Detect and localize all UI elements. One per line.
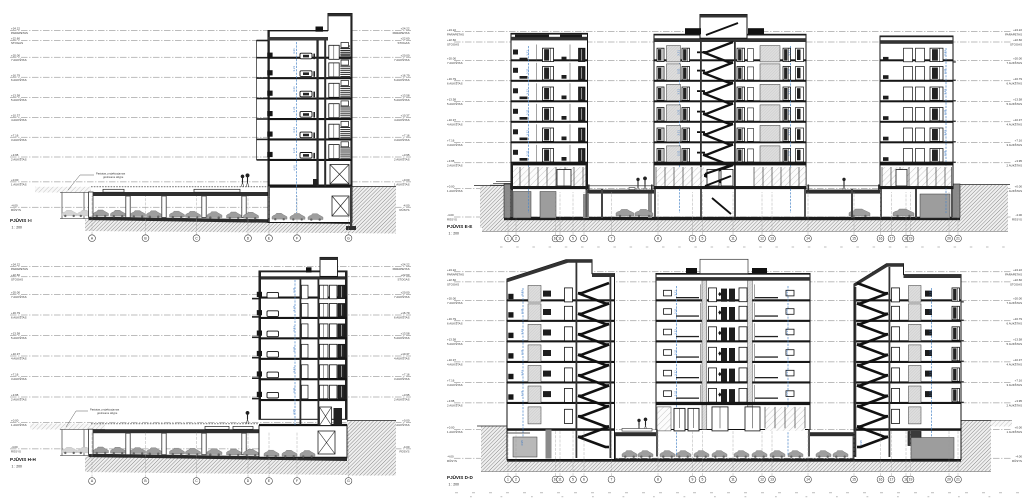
- svg-text:+0.00: +0.00: [1015, 185, 1023, 189]
- svg-text:STOGAS: STOGAS: [447, 283, 459, 287]
- svg-text:5 AUKŠTAS: 5 AUKŠTAS: [11, 335, 27, 340]
- svg-text:+7.16: +7.16: [11, 373, 19, 377]
- svg-text:+22.60: +22.60: [11, 37, 20, 41]
- svg-text:2 AUKŠTAS: 2 AUKŠTAS: [447, 162, 463, 167]
- svg-text:7 AUKŠTAS: 7 AUKŠTAS: [1006, 60, 1022, 65]
- svg-text:3.21: 3.21: [526, 89, 530, 95]
- svg-text:4 AUKŠTAS: 4 AUKŠTAS: [1006, 121, 1022, 126]
- svg-text:G: G: [347, 236, 350, 240]
- svg-text:3.21: 3.21: [292, 326, 296, 332]
- svg-text:1: 1: [507, 478, 509, 482]
- svg-text:+20.00: +20.00: [1013, 56, 1022, 60]
- svg-text:3.21: 3.21: [785, 290, 789, 296]
- svg-text:3.21: 3.21: [929, 370, 933, 376]
- svg-text:PJŪVIS D-D: PJŪVIS D-D: [447, 474, 473, 480]
- svg-text:+24.22: +24.22: [1013, 28, 1022, 32]
- svg-text:3.21: 3.21: [520, 370, 524, 376]
- svg-text:3.21: 3.21: [292, 48, 296, 54]
- svg-text:3.21: 3.21: [788, 150, 792, 156]
- svg-text:3.21: 3.21: [677, 68, 681, 74]
- svg-text:+0.00: +0.00: [447, 426, 455, 430]
- svg-text:+22.60: +22.60: [401, 273, 410, 277]
- svg-text:3.21: 3.21: [929, 308, 933, 314]
- svg-text:+10.37: +10.37: [401, 352, 410, 356]
- svg-text:+16.79: +16.79: [447, 77, 456, 81]
- svg-text:14: 14: [806, 237, 810, 241]
- svg-text:3.21: 3.21: [929, 290, 933, 296]
- svg-text:+13.58: +13.58: [1013, 97, 1022, 101]
- svg-text:20: 20: [947, 237, 951, 241]
- svg-text:+10.37: +10.37: [11, 114, 20, 118]
- svg-text:4 AUKŠTAS: 4 AUKŠTAS: [394, 356, 410, 361]
- svg-text:2 AUKŠTAS: 2 AUKŠTAS: [11, 157, 27, 162]
- svg-text:+0.00: +0.00: [11, 419, 19, 423]
- svg-text:+22.60: +22.60: [447, 38, 456, 42]
- svg-text:17: 17: [890, 237, 894, 241]
- svg-text:+3.95: +3.95: [1015, 159, 1023, 163]
- svg-text:+20.00: +20.00: [447, 56, 456, 60]
- svg-text:5 AUKŠTAS: 5 AUKŠTAS: [394, 97, 410, 102]
- svg-text:2 AUKŠTAS: 2 AUKŠTAS: [447, 403, 463, 408]
- svg-text:3.21: 3.21: [674, 308, 678, 314]
- svg-text:3.21: 3.21: [526, 50, 530, 56]
- svg-text:3.21: 3.21: [520, 349, 524, 355]
- svg-text:+13.58: +13.58: [11, 94, 20, 98]
- svg-text:+10.37: +10.37: [447, 358, 456, 362]
- svg-text:8: 8: [657, 478, 659, 482]
- svg-text:21: 21: [956, 478, 960, 482]
- svg-text:3.21: 3.21: [292, 387, 296, 393]
- svg-text:3.21: 3.21: [292, 367, 296, 373]
- svg-text:+0.00: +0.00: [1015, 426, 1023, 430]
- svg-text:+16.79: +16.79: [401, 311, 410, 315]
- svg-text:STOGAS: STOGAS: [398, 41, 410, 45]
- svg-text:3.21: 3.21: [929, 390, 933, 396]
- svg-text:3.21: 3.21: [929, 329, 933, 335]
- svg-text:+16.79: +16.79: [11, 73, 20, 77]
- svg-text:20: 20: [947, 478, 951, 482]
- svg-text:+7.16: +7.16: [402, 133, 410, 137]
- svg-text:+20.00: +20.00: [401, 291, 410, 295]
- svg-text:3.21: 3.21: [292, 346, 296, 352]
- svg-text:3.21: 3.21: [292, 106, 296, 112]
- svg-text:7 AUKŠTAS: 7 AUKŠTAS: [447, 60, 463, 65]
- svg-text:14: 14: [806, 478, 810, 482]
- svg-text:RŪSYS: RŪSYS: [400, 208, 410, 212]
- svg-text:+7.16: +7.16: [447, 138, 455, 142]
- svg-text:3.21: 3.21: [788, 130, 792, 136]
- svg-text:1 : 200: 1 : 200: [449, 231, 459, 235]
- svg-text:STOGAS: STOGAS: [447, 43, 459, 47]
- svg-text:+24.22: +24.22: [447, 28, 456, 32]
- svg-text:3 AUKŠTAS: 3 AUKŠTAS: [447, 382, 463, 387]
- svg-text:3.21: 3.21: [785, 308, 789, 314]
- svg-text:5 AUKŠTAS: 5 AUKŠTAS: [394, 335, 410, 340]
- svg-text:3.21: 3.21: [677, 89, 681, 95]
- svg-text:1 AUKŠTAS: 1 AUKŠTAS: [447, 188, 463, 193]
- svg-text:+22.60: +22.60: [447, 278, 456, 282]
- svg-text:3.21: 3.21: [677, 150, 681, 156]
- svg-text:6 AUKŠTAS: 6 AUKŠTAS: [11, 77, 27, 82]
- svg-text:+10.37: +10.37: [11, 352, 20, 356]
- svg-text:PJŪVIS H-H: PJŪVIS H-H: [10, 456, 36, 462]
- svg-text:6 AUKŠTAS: 6 AUKŠTAS: [394, 77, 410, 82]
- svg-text:13: 13: [770, 478, 774, 482]
- svg-text:3.21: 3.21: [788, 68, 792, 74]
- svg-text:15: 15: [852, 237, 856, 241]
- svg-text:5 AUKŠTAS: 5 AUKŠTAS: [1006, 101, 1022, 106]
- svg-text:PARAPETAS: PARAPETAS: [11, 31, 28, 35]
- svg-text:7 AUKŠTAS: 7 AUKŠTAS: [11, 57, 27, 62]
- svg-text:+13.58: +13.58: [447, 337, 456, 341]
- svg-text:7: 7: [611, 237, 613, 241]
- svg-text:RŪSYS: RŪSYS: [1012, 459, 1022, 463]
- svg-text:1 AUKŠTAS: 1 AUKŠTAS: [1006, 429, 1022, 434]
- svg-text:3.21: 3.21: [929, 349, 933, 355]
- svg-text:6 AUKŠTAS: 6 AUKŠTAS: [11, 315, 27, 320]
- svg-text:3.21: 3.21: [943, 109, 947, 115]
- svg-text:3.21: 3.21: [292, 66, 296, 72]
- svg-text:RŪSYS: RŪSYS: [1012, 218, 1022, 222]
- svg-text:3.21: 3.21: [677, 109, 681, 115]
- svg-text:+3.95: +3.95: [402, 393, 410, 397]
- svg-text:+10.37: +10.37: [401, 114, 410, 118]
- svg-text:5: 5: [702, 478, 704, 482]
- svg-text:2 AUKŠTAS: 2 AUKŠTAS: [11, 397, 27, 402]
- svg-text:3.21: 3.21: [785, 329, 789, 335]
- svg-text:PARAPETAS: PARAPETAS: [447, 32, 464, 36]
- svg-text:-4.00: -4.00: [447, 213, 454, 217]
- svg-text:17: 17: [890, 478, 894, 482]
- svg-text:+13.58: +13.58: [401, 94, 410, 98]
- svg-text:5: 5: [702, 237, 704, 241]
- svg-text:3.21: 3.21: [520, 308, 524, 314]
- svg-text:3.21: 3.21: [526, 109, 530, 115]
- svg-text:8: 8: [657, 237, 659, 241]
- svg-text:RŪSYS: RŪSYS: [447, 218, 457, 222]
- svg-text:STOGAS: STOGAS: [398, 277, 410, 281]
- svg-text:21: 21: [956, 237, 960, 241]
- svg-text:3.21: 3.21: [520, 329, 524, 335]
- svg-text:3.21: 3.21: [674, 390, 678, 396]
- svg-text:5 AUKŠTAS: 5 AUKŠTAS: [447, 101, 463, 106]
- svg-text:12: 12: [760, 478, 764, 482]
- svg-text:4 AUKŠTAS: 4 AUKŠTAS: [1006, 362, 1022, 367]
- svg-text:9: 9: [692, 237, 694, 241]
- svg-text:RŪSYS: RŪSYS: [400, 450, 410, 454]
- svg-text:4 AUKŠTAS: 4 AUKŠTAS: [447, 121, 463, 126]
- svg-text:19: 19: [909, 478, 913, 482]
- svg-text:1 AUKŠTAS: 1 AUKŠTAS: [394, 182, 410, 187]
- svg-text:+7.16: +7.16: [1015, 138, 1023, 142]
- svg-text:4 AUKŠTAS: 4 AUKŠTAS: [394, 117, 410, 122]
- svg-text:+0.00: +0.00: [402, 419, 410, 423]
- svg-text:3 AUKŠTAS: 3 AUKŠTAS: [447, 142, 463, 147]
- svg-text:+13.58: +13.58: [447, 97, 456, 101]
- svg-text:PJŪVIS E-E: PJŪVIS E-E: [447, 223, 472, 229]
- svg-text:19: 19: [909, 237, 913, 241]
- svg-text:STOGAS: STOGAS: [11, 277, 23, 281]
- svg-text:3.21: 3.21: [785, 370, 789, 376]
- svg-text:4.95: 4.95: [293, 165, 297, 171]
- svg-text:+7.16: +7.16: [447, 379, 455, 383]
- svg-text:6 AUKŠTAS: 6 AUKŠTAS: [1006, 320, 1022, 325]
- svg-text:3.21: 3.21: [520, 290, 524, 296]
- svg-text:15: 15: [852, 478, 856, 482]
- svg-text:3 AUKŠTAS: 3 AUKŠTAS: [394, 376, 410, 381]
- svg-text:11: 11: [558, 478, 562, 482]
- svg-text:7: 7: [611, 478, 613, 482]
- svg-text:4 AUKŠTAS: 4 AUKŠTAS: [11, 356, 27, 361]
- svg-text:+3.95: +3.95: [447, 159, 455, 163]
- svg-text:2 AUKŠTAS: 2 AUKŠTAS: [1006, 162, 1022, 167]
- svg-text:+3.95: +3.95: [402, 153, 410, 157]
- svg-text:3 AUKŠTAS: 3 AUKŠTAS: [11, 376, 27, 381]
- svg-text:5 AUKŠTAS: 5 AUKŠTAS: [1006, 341, 1022, 346]
- svg-text:3.21: 3.21: [788, 89, 792, 95]
- svg-text:3.21: 3.21: [943, 89, 947, 95]
- svg-text:1 AUKŠTAS: 1 AUKŠTAS: [11, 422, 27, 427]
- svg-text:1 AUKŠTAS: 1 AUKŠTAS: [1006, 188, 1022, 193]
- svg-text:1 : 200: 1 : 200: [12, 225, 22, 229]
- svg-text:3.21: 3.21: [292, 147, 296, 153]
- svg-text:+16.79: +16.79: [401, 73, 410, 77]
- svg-text:3 AUKŠTAS: 3 AUKŠTAS: [1006, 142, 1022, 147]
- svg-text:PARAPETAS: PARAPETAS: [1005, 272, 1022, 276]
- svg-text:+0.00: +0.00: [447, 185, 455, 189]
- svg-text:3.21: 3.21: [292, 287, 296, 293]
- svg-text:2: 2: [515, 478, 517, 482]
- svg-text:+13.58: +13.58: [401, 332, 410, 336]
- svg-text:3 AUKŠTAS: 3 AUKŠTAS: [11, 137, 27, 142]
- svg-text:4.95: 4.95: [859, 440, 863, 446]
- svg-text:12: 12: [760, 237, 764, 241]
- svg-text:-4.00: -4.00: [1015, 213, 1022, 217]
- svg-text:STOGAS: STOGAS: [1010, 43, 1022, 47]
- svg-text:6: 6: [583, 478, 585, 482]
- svg-text:+16.79: +16.79: [447, 317, 456, 321]
- svg-text:3.21: 3.21: [943, 68, 947, 74]
- svg-text:6 AUKŠTAS: 6 AUKŠTAS: [1006, 80, 1022, 85]
- svg-text:+3.95: +3.95: [11, 393, 19, 397]
- svg-text:16: 16: [879, 237, 883, 241]
- svg-text:6 AUKŠTAS: 6 AUKŠTAS: [447, 320, 463, 325]
- svg-text:7 AUKŠTAS: 7 AUKŠTAS: [447, 300, 463, 305]
- svg-text:+10.37: +10.37: [1013, 358, 1022, 362]
- svg-text:+24.22: +24.22: [11, 27, 20, 31]
- svg-text:+22.60: +22.60: [401, 37, 410, 41]
- svg-text:PARAPETAS: PARAPETAS: [11, 267, 28, 271]
- svg-text:+24.22: +24.22: [1013, 268, 1022, 272]
- svg-text:3.21: 3.21: [788, 109, 792, 115]
- svg-text:+3.95: +3.95: [11, 153, 19, 157]
- svg-text:2 AUKŠTAS: 2 AUKŠTAS: [394, 157, 410, 162]
- svg-text:7 AUKŠTAS: 7 AUKŠTAS: [1006, 300, 1022, 305]
- svg-text:+10.37: +10.37: [447, 118, 456, 122]
- svg-text:3.21: 3.21: [674, 290, 678, 296]
- svg-text:3 AUKŠTAS: 3 AUKŠTAS: [394, 137, 410, 142]
- svg-text:6 AUKŠTAS: 6 AUKŠTAS: [447, 80, 463, 85]
- svg-text:4 AUKŠTAS: 4 AUKŠTAS: [447, 362, 463, 367]
- svg-text:1: 1: [507, 237, 509, 241]
- svg-text:+22.60: +22.60: [1013, 38, 1022, 42]
- svg-text:6: 6: [583, 237, 585, 241]
- svg-text:+0.00: +0.00: [402, 178, 410, 182]
- svg-text:+7.16: +7.16: [402, 373, 410, 377]
- svg-text:1 AUKŠTAS: 1 AUKŠTAS: [11, 182, 27, 187]
- svg-text:+7.16: +7.16: [11, 133, 19, 137]
- svg-text:-4.00: -4.00: [1015, 454, 1022, 458]
- svg-text:gretimame sklype: gretimame sklype: [97, 411, 118, 415]
- svg-text:3.21: 3.21: [526, 150, 530, 156]
- svg-text:3.21: 3.21: [520, 390, 524, 396]
- svg-text:3.21: 3.21: [943, 130, 947, 136]
- svg-text:3.21: 3.21: [292, 305, 296, 311]
- svg-text:PARAPETAS: PARAPETAS: [1005, 32, 1022, 36]
- svg-text:1 AUKŠTAS: 1 AUKŠTAS: [447, 429, 463, 434]
- svg-text:3.21: 3.21: [943, 150, 947, 156]
- svg-text:+20.00: +20.00: [1013, 296, 1022, 300]
- svg-text:3.21: 3.21: [788, 50, 792, 56]
- svg-text:4.95: 4.95: [520, 440, 524, 446]
- svg-text:+13.58: +13.58: [11, 332, 20, 336]
- svg-text:+20.00: +20.00: [11, 291, 20, 295]
- svg-text:RŪSYS: RŪSYS: [11, 450, 21, 454]
- svg-text:11: 11: [731, 478, 735, 482]
- svg-text:+10.37: +10.37: [1013, 118, 1022, 122]
- svg-text:RŪSYS: RŪSYS: [447, 459, 457, 463]
- svg-text:RŪSYS: RŪSYS: [11, 208, 21, 212]
- svg-text:7 AUKŠTAS: 7 AUKŠTAS: [11, 294, 27, 299]
- svg-text:3.21: 3.21: [674, 349, 678, 355]
- svg-text:1 AUKŠTAS: 1 AUKŠTAS: [394, 422, 410, 427]
- svg-text:3.21: 3.21: [526, 68, 530, 74]
- svg-text:5 AUKŠTAS: 5 AUKŠTAS: [11, 97, 27, 102]
- svg-text:3.21: 3.21: [292, 127, 296, 133]
- svg-text:-4.00: -4.00: [11, 203, 18, 207]
- svg-text:6 AUKŠTAS: 6 AUKŠTAS: [394, 315, 410, 320]
- svg-text:2 AUKŠTAS: 2 AUKŠTAS: [1006, 403, 1022, 408]
- svg-text:+16.79: +16.79: [1013, 317, 1022, 321]
- svg-text:+20.00: +20.00: [11, 53, 20, 57]
- svg-text:+0.00: +0.00: [11, 178, 19, 182]
- svg-text:7 AUKŠTAS: 7 AUKŠTAS: [394, 294, 410, 299]
- svg-text:3.21: 3.21: [677, 130, 681, 136]
- svg-text:+24.22: +24.22: [447, 268, 456, 272]
- svg-text:1 : 200: 1 : 200: [12, 464, 22, 468]
- svg-text:3.21: 3.21: [292, 86, 296, 92]
- svg-text:STOGAS: STOGAS: [1010, 283, 1022, 287]
- svg-text:11: 11: [731, 237, 735, 241]
- svg-text:gretimame sklype: gretimame sklype: [103, 175, 124, 179]
- svg-text:16: 16: [879, 478, 883, 482]
- svg-text:+20.00: +20.00: [447, 296, 456, 300]
- svg-text:+16.79: +16.79: [1013, 77, 1022, 81]
- svg-text:+3.95: +3.95: [447, 399, 455, 403]
- svg-text:3.21: 3.21: [677, 50, 681, 56]
- svg-text:2: 2: [515, 237, 517, 241]
- svg-text:5: 5: [572, 237, 574, 241]
- svg-text:PJŪVIS I-I: PJŪVIS I-I: [10, 217, 32, 223]
- svg-text:5: 5: [572, 478, 574, 482]
- svg-text:PARAPETAS: PARAPETAS: [447, 272, 464, 276]
- svg-text:4.95: 4.95: [292, 409, 296, 415]
- svg-text:3 AUKŠTAS: 3 AUKŠTAS: [1006, 382, 1022, 387]
- svg-text:+13.58: +13.58: [1013, 337, 1022, 341]
- svg-text:STOGAS: STOGAS: [11, 41, 23, 45]
- svg-text:+24.22: +24.22: [11, 263, 20, 267]
- svg-text:2 AUKŠTAS: 2 AUKŠTAS: [394, 397, 410, 402]
- svg-text:F: F: [296, 479, 298, 483]
- svg-text:-4.00: -4.00: [447, 454, 454, 458]
- svg-text:+7.16: +7.16: [1015, 379, 1023, 383]
- svg-text:+20.00: +20.00: [401, 53, 410, 57]
- svg-text:PARAPETAS: PARAPETAS: [393, 31, 410, 35]
- svg-text:13: 13: [770, 237, 774, 241]
- svg-text:3.21: 3.21: [785, 390, 789, 396]
- svg-text:3.21: 3.21: [674, 370, 678, 376]
- svg-text:-4.00: -4.00: [403, 445, 410, 449]
- svg-text:G: G: [347, 479, 350, 483]
- svg-text:F: F: [296, 236, 298, 240]
- svg-text:11: 11: [558, 237, 562, 241]
- svg-text:3.21: 3.21: [674, 329, 678, 335]
- svg-text:-4.00: -4.00: [11, 445, 18, 449]
- svg-text:1 : 200: 1 : 200: [449, 482, 459, 486]
- svg-text:-4.00: -4.00: [403, 203, 410, 207]
- svg-text:+24.22: +24.22: [401, 27, 410, 31]
- svg-text:3.21: 3.21: [943, 50, 947, 56]
- svg-text:+24.22: +24.22: [401, 263, 410, 267]
- svg-text:+3.95: +3.95: [1015, 399, 1023, 403]
- svg-text:3.21: 3.21: [526, 130, 530, 136]
- svg-text:+16.79: +16.79: [11, 311, 20, 315]
- svg-text:5 AUKŠTAS: 5 AUKŠTAS: [447, 341, 463, 346]
- svg-text:PARAPETAS: PARAPETAS: [393, 267, 410, 271]
- svg-text:9: 9: [692, 478, 694, 482]
- svg-text:7 AUKŠTAS: 7 AUKŠTAS: [394, 57, 410, 62]
- svg-text:+22.60: +22.60: [1013, 278, 1022, 282]
- svg-text:3.21: 3.21: [785, 349, 789, 355]
- svg-text:+22.60: +22.60: [11, 273, 20, 277]
- svg-text:4 AUKŠTAS: 4 AUKŠTAS: [11, 117, 27, 122]
